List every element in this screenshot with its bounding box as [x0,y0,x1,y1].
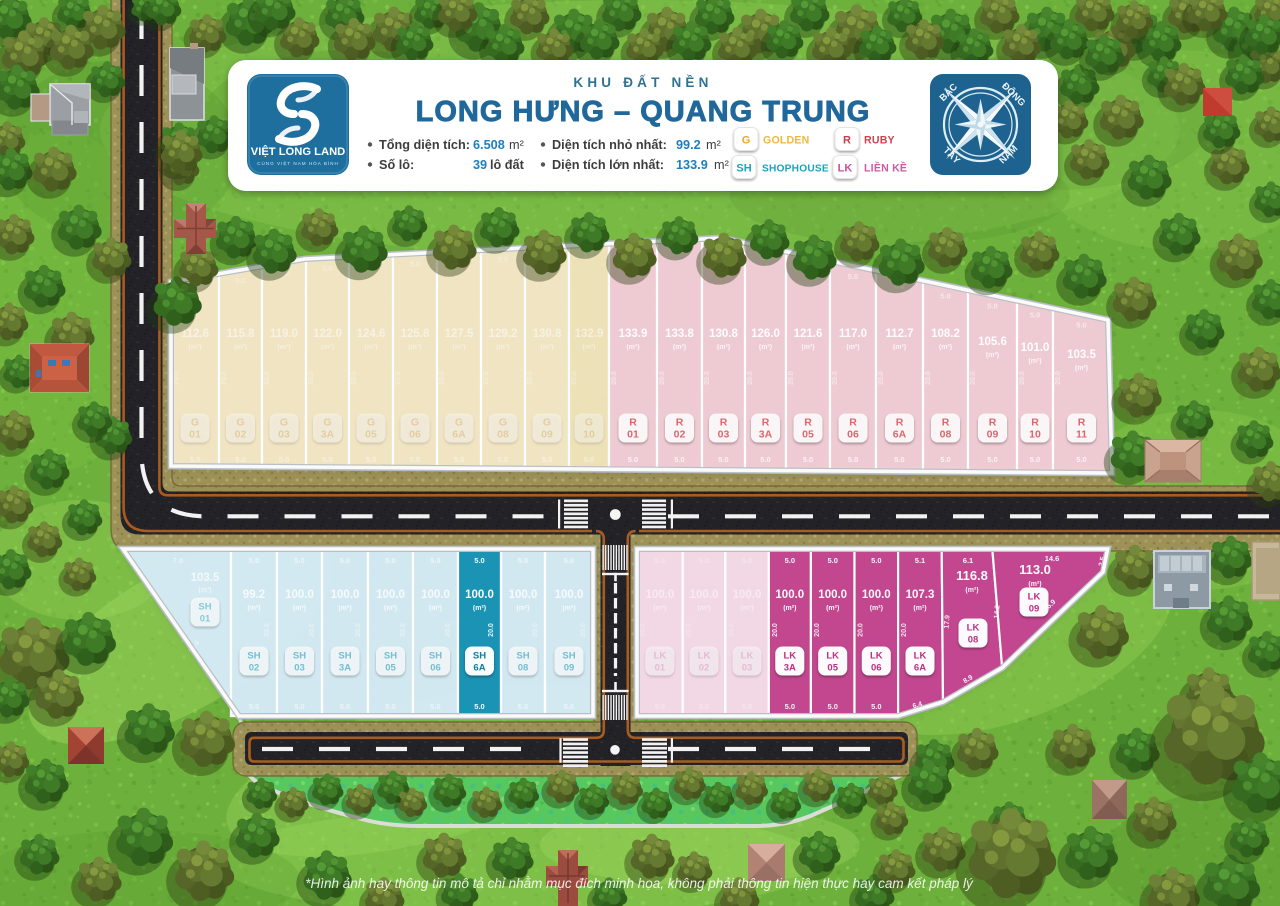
svg-text:G: G [323,416,331,428]
svg-text:(m²): (m²) [234,344,247,351]
svg-text:20.0: 20.0 [728,623,735,637]
svg-text:(m²): (m²) [1075,365,1088,372]
svg-text:(m²): (m²) [740,605,753,612]
svg-text:01: 01 [627,428,639,440]
svg-text:m²: m² [509,138,524,152]
svg-text:20.0: 20.0 [970,371,977,385]
svg-text:R: R [942,416,950,428]
svg-text:103.5: 103.5 [1067,349,1096,361]
svg-text:G: G [455,416,463,428]
svg-text:*Hình ảnh hay thông tin mô tả: *Hình ảnh hay thông tin mô tả chỉ nhằm m… [305,876,974,891]
svg-text:02: 02 [699,662,710,673]
svg-text:LK: LK [838,163,853,175]
svg-text:100.0: 100.0 [509,589,538,601]
svg-text:02: 02 [235,428,247,440]
svg-text:20.0: 20.0 [527,371,534,385]
svg-text:(m²): (m²) [673,344,686,351]
svg-text:5.0: 5.0 [235,276,245,285]
svg-text:5.0: 5.0 [894,455,904,464]
svg-text:(m²): (m²) [540,344,553,351]
svg-text:lô đất: lô đất [490,158,525,172]
svg-text:08: 08 [497,428,509,440]
svg-text:20.0: 20.0 [308,371,315,385]
svg-text:20.0: 20.0 [264,623,271,637]
svg-text:5.0: 5.0 [410,260,420,269]
svg-text:5.0: 5.0 [190,455,200,464]
svg-text:(m²): (m²) [717,344,730,351]
svg-text:5.0: 5.0 [474,556,484,565]
svg-text:5.0: 5.0 [628,455,638,464]
svg-text:Diện tích nhỏ nhất:: Diện tích nhỏ nhất: [552,138,667,152]
svg-text:06: 06 [847,428,859,440]
svg-text:SH: SH [562,650,575,661]
svg-text:5.0: 5.0 [474,702,484,711]
svg-text:117.0: 117.0 [839,328,867,340]
svg-text:(m²): (m²) [826,605,839,612]
svg-text:126.0: 126.0 [751,328,780,340]
svg-text:5.0: 5.0 [655,702,665,711]
svg-text:132.9: 132.9 [575,328,604,340]
svg-text:5.0: 5.0 [564,556,574,565]
svg-text:05: 05 [385,662,396,673]
svg-text:20.0: 20.0 [814,623,821,637]
svg-text:130.8: 130.8 [533,328,562,340]
svg-text:03: 03 [278,428,290,440]
svg-text:CÙNG VIỆT NAM HÒA BÌNH: CÙNG VIỆT NAM HÒA BÌNH [257,159,339,166]
svg-text:6A: 6A [473,662,485,673]
svg-text:(m²): (m²) [429,605,442,612]
svg-text:LIỀN KỀ: LIỀN KỀ [864,162,907,175]
svg-text:5.0: 5.0 [410,455,420,464]
svg-text:(m²): (m²) [247,605,260,612]
svg-text:20.0: 20.0 [901,623,908,637]
svg-text:5.0: 5.0 [699,702,709,711]
svg-text:05: 05 [365,428,377,440]
svg-text:09: 09 [541,428,553,440]
svg-text:121.6: 121.6 [794,328,823,340]
svg-text:20.0: 20.0 [925,371,932,385]
svg-text:124.6: 124.6 [357,328,386,340]
svg-text:5.0: 5.0 [987,455,997,464]
svg-text:5.0: 5.0 [742,702,752,711]
svg-text:20.0: 20.0 [395,371,402,385]
svg-text:5.0: 5.0 [385,556,395,565]
svg-text:133.8: 133.8 [665,328,694,340]
svg-text:(m²): (m²) [939,344,952,351]
svg-text:03: 03 [718,428,730,440]
svg-text:m²: m² [714,158,729,172]
svg-text:6.508: 6.508 [473,138,505,152]
svg-text:5.0: 5.0 [718,455,728,464]
svg-text:m²: m² [706,138,721,152]
svg-text:R: R [1078,416,1086,428]
svg-text:20.0: 20.0 [351,371,358,385]
svg-text:LK: LK [826,650,839,661]
svg-text:5.0: 5.0 [294,556,304,565]
svg-text:SH: SH [247,650,260,661]
svg-text:(m²): (m²) [759,344,772,351]
svg-text:Diện tích lớn nhất:: Diện tích lớn nhất: [552,158,664,172]
svg-text:SHOPHOUSE: SHOPHOUSE [762,164,829,175]
svg-text:5.0: 5.0 [827,702,837,711]
svg-text:113.0: 113.0 [1019,562,1051,577]
svg-text:5.0: 5.0 [785,556,795,565]
svg-text:20.0: 20.0 [1019,371,1026,385]
svg-text:20.0: 20.0 [400,623,407,637]
svg-text:08: 08 [940,428,952,440]
svg-text:SH: SH [736,163,751,175]
svg-text:G: G [280,416,288,428]
svg-text:LK: LK [654,650,667,661]
svg-text:20.0: 20.0 [532,623,539,637]
svg-text:(m²): (m²) [870,605,883,612]
svg-text:5.0: 5.0 [803,455,813,464]
svg-text:R: R [843,135,851,147]
svg-text:100.0: 100.0 [465,589,494,601]
svg-text:100.0: 100.0 [331,589,360,601]
svg-text:G: G [742,135,751,147]
svg-text:02: 02 [249,662,260,673]
svg-text:10: 10 [583,428,595,440]
svg-text:03: 03 [294,662,305,673]
svg-text:100.0: 100.0 [285,589,314,601]
svg-text:(m²): (m²) [582,344,595,351]
svg-text:R: R [804,416,812,428]
svg-text:5.0: 5.0 [454,455,464,464]
svg-text:122.0: 122.0 [313,328,342,340]
svg-text:(m²): (m²) [496,344,509,351]
svg-text:5.0: 5.0 [340,702,350,711]
svg-text:20.0: 20.0 [488,623,495,637]
svg-text:5.0: 5.0 [785,702,795,711]
svg-text:(m²): (m²) [321,344,334,351]
svg-text:(m²): (m²) [516,605,529,612]
svg-text:7.0: 7.0 [173,556,183,565]
svg-text:133.9: 133.9 [676,158,708,172]
svg-text:(m²): (m²) [188,344,201,351]
svg-text:LK: LK [870,650,883,661]
svg-text:100.0: 100.0 [775,589,804,601]
svg-text:116.8: 116.8 [956,568,988,583]
svg-text:115.8: 115.8 [226,328,255,340]
svg-text:5.0: 5.0 [498,255,508,264]
svg-text:SH: SH [198,601,211,612]
svg-text:17.9: 17.9 [944,615,952,629]
svg-text:VIỆT LONG LAND: VIỆT LONG LAND [251,145,345,158]
svg-text:(m²): (m²) [893,344,906,351]
svg-text:(m²): (m²) [965,587,978,594]
svg-text:(m²): (m²) [562,605,575,612]
svg-text:RUBY: RUBY [864,135,895,147]
svg-text:R: R [1031,416,1039,428]
svg-text:LK: LK [783,650,796,661]
svg-text:LK: LK [1028,591,1041,602]
svg-text:6.1: 6.1 [963,556,973,565]
svg-text:5.0: 5.0 [518,556,528,565]
svg-text:5.0: 5.0 [848,272,858,281]
svg-text:5.0: 5.0 [940,455,950,464]
svg-text:5.0: 5.0 [542,455,552,464]
svg-text:(m²): (m²) [384,605,397,612]
svg-text:20.0: 20.0 [264,371,271,385]
svg-text:20.0: 20.0 [640,623,647,637]
svg-text:G: G [191,416,199,428]
svg-text:20.0: 20.0 [580,623,587,637]
svg-text:105.6: 105.6 [978,336,1007,348]
svg-text:101.0: 101.0 [1021,342,1050,354]
svg-text:Tổng diện tích:: Tổng diện tích: [379,138,470,152]
svg-text:R: R [676,416,684,428]
svg-text:(m²): (m²) [697,605,710,612]
svg-text:20.0: 20.0 [686,623,693,637]
svg-text:09: 09 [564,662,575,673]
svg-text:14.2: 14.2 [993,605,1001,619]
svg-text:SH: SH [473,650,486,661]
svg-text:LK: LK [967,622,980,633]
svg-text:20.0: 20.0 [878,371,885,385]
svg-text:Số lô:: Số lô: [379,158,414,172]
svg-text:(m²): (m²) [364,344,377,351]
svg-text:5.0: 5.0 [699,556,709,565]
svg-text:(m²): (m²) [452,344,465,351]
svg-text:99.2: 99.2 [243,589,265,601]
svg-text:99.2: 99.2 [676,138,701,152]
svg-text:5.0: 5.0 [848,455,858,464]
svg-text:(m²): (m²) [913,605,926,612]
svg-text:100.0: 100.0 [376,589,405,601]
svg-text:5.0: 5.0 [294,702,304,711]
svg-text:20.0: 20.0 [309,623,316,637]
svg-text:11: 11 [1076,428,1087,440]
svg-text:100.0: 100.0 [421,589,450,601]
svg-text:5.0: 5.0 [279,455,289,464]
svg-text:(m²): (m²) [783,605,796,612]
svg-text:107.3: 107.3 [906,589,935,601]
svg-text:6A: 6A [452,428,466,440]
svg-text:3A: 3A [784,662,796,673]
svg-text:03: 03 [742,662,753,673]
svg-text:LK: LK [914,650,927,661]
svg-text:06: 06 [409,428,421,440]
svg-text:20.0: 20.0 [173,371,180,385]
svg-text:5.0: 5.0 [385,702,395,711]
svg-text:KHU ĐẤT NỀN: KHU ĐẤT NỀN [573,75,712,90]
svg-text:G: G [499,416,507,428]
svg-text:(m²): (m²) [198,587,211,594]
svg-text:5.0: 5.0 [1076,320,1086,329]
svg-text:LK: LK [698,650,711,661]
svg-text:5.0: 5.0 [366,455,376,464]
svg-text:05: 05 [802,428,814,440]
svg-text:3A: 3A [321,428,335,440]
svg-text:5.0: 5.0 [1030,311,1040,320]
svg-text:5.0: 5.0 [340,556,350,565]
svg-text:5.0: 5.0 [235,455,245,464]
svg-text:20.0: 20.0 [772,623,779,637]
svg-text:5.0: 5.0 [987,302,997,311]
svg-text:100.0: 100.0 [646,589,675,601]
svg-text:5.0: 5.0 [871,556,881,565]
svg-text:127.5: 127.5 [445,328,474,340]
svg-text:GOLDEN: GOLDEN [763,135,810,147]
svg-text:133.9: 133.9 [619,328,648,340]
svg-text:5.0: 5.0 [871,702,881,711]
svg-text:(m²): (m²) [293,605,306,612]
svg-text:02: 02 [674,428,686,440]
svg-text:09: 09 [987,428,999,440]
svg-text:(m²): (m²) [1028,581,1041,588]
svg-text:20.0: 20.0 [221,371,228,385]
svg-text:(m²): (m²) [846,344,859,351]
svg-text:10: 10 [1029,428,1041,440]
svg-text:129.2: 129.2 [489,328,518,340]
svg-text:(m²): (m²) [277,344,290,351]
svg-text:LONG HƯNG – QUANG TRUNG: LONG HƯNG – QUANG TRUNG [416,96,871,128]
svg-text:R: R [896,416,904,428]
svg-text:3A: 3A [339,662,351,673]
svg-text:G: G [236,416,244,428]
svg-text:39: 39 [473,158,487,172]
svg-text:09: 09 [1029,603,1040,614]
svg-text:20.0: 20.0 [659,371,666,385]
svg-text:5.0: 5.0 [518,702,528,711]
svg-text:5.0: 5.0 [584,455,594,464]
svg-text:01: 01 [655,662,666,673]
svg-text:20.0: 20.0 [704,371,711,385]
svg-text:SH: SH [293,650,306,661]
svg-text:SH: SH [429,650,442,661]
svg-text:100.0: 100.0 [733,589,762,601]
svg-text:06: 06 [871,662,882,673]
svg-text:5.0: 5.0 [249,702,259,711]
svg-text:20.0: 20.0 [571,371,578,385]
svg-text:112.6: 112.6 [181,328,209,340]
svg-text:5.0: 5.0 [1030,455,1040,464]
svg-text:5.0: 5.0 [430,702,440,711]
svg-text:SH: SH [338,650,351,661]
svg-text:5.0: 5.0 [322,264,332,273]
svg-text:(m²): (m²) [626,344,639,351]
svg-text:125.8: 125.8 [401,328,430,340]
svg-text:6A: 6A [893,428,907,440]
svg-text:20.0: 20.0 [788,371,795,385]
svg-text:100.0: 100.0 [690,589,719,601]
svg-text:R: R [762,416,770,428]
svg-text:5.0: 5.0 [742,556,752,565]
svg-text:R: R [720,416,728,428]
svg-text:5.0: 5.0 [249,556,259,565]
svg-text:G: G [543,416,551,428]
svg-text:5.0: 5.0 [674,455,684,464]
svg-text:20.0: 20.0 [445,623,452,637]
svg-text:100.0: 100.0 [555,589,584,601]
svg-text:06: 06 [430,662,441,673]
svg-text:6A: 6A [914,662,926,673]
svg-text:20.0: 20.0 [832,371,839,385]
svg-text:(m²): (m²) [473,605,486,612]
svg-text:R: R [849,416,857,428]
svg-text:G: G [367,416,375,428]
svg-text:20.0: 20.0 [1055,371,1062,385]
svg-text:(m²): (m²) [986,352,999,359]
svg-text:08: 08 [518,662,529,673]
svg-text:5.0: 5.0 [827,556,837,565]
svg-text:5.0: 5.0 [760,455,770,464]
svg-text:G: G [411,416,419,428]
svg-text:5.0: 5.0 [1076,455,1086,464]
svg-text:SH: SH [384,650,397,661]
svg-text:100.0: 100.0 [862,589,891,601]
svg-text:5.0: 5.0 [940,292,950,301]
svg-text:130.8: 130.8 [709,328,738,340]
svg-text:20.0: 20.0 [439,371,446,385]
svg-text:G: G [585,416,593,428]
svg-text:SH: SH [516,650,529,661]
svg-text:LK: LK [741,650,754,661]
svg-text:08: 08 [968,634,979,645]
svg-text:20.0: 20.0 [611,371,618,385]
svg-text:5.1: 5.1 [915,556,925,565]
svg-text:20.0: 20.0 [355,623,362,637]
svg-text:5.0: 5.0 [564,702,574,711]
svg-text:103.5: 103.5 [191,572,220,584]
svg-text:5.0: 5.0 [498,455,508,464]
svg-text:(m²): (m²) [653,605,666,612]
svg-text:05: 05 [827,662,838,673]
svg-text:20.0: 20.0 [483,371,490,385]
svg-text:100.0: 100.0 [818,589,847,601]
svg-text:108.2: 108.2 [931,328,960,340]
svg-text:(m²): (m²) [801,344,814,351]
svg-text:5.0: 5.0 [430,556,440,565]
svg-text:5.0: 5.0 [322,455,332,464]
svg-text:(m²): (m²) [408,344,421,351]
svg-text:R: R [629,416,637,428]
svg-text:20.0: 20.0 [858,623,865,637]
svg-text:112.7: 112.7 [885,328,913,340]
svg-text:119.0: 119.0 [270,328,298,340]
svg-text:01: 01 [189,428,201,440]
svg-text:R: R [989,416,997,428]
svg-text:3A: 3A [759,428,773,440]
svg-text:5.0: 5.0 [655,556,665,565]
svg-text:(m²): (m²) [338,605,351,612]
svg-text:(m²): (m²) [1028,358,1041,365]
svg-text:20.0: 20.0 [747,371,754,385]
svg-text:01: 01 [200,613,211,624]
